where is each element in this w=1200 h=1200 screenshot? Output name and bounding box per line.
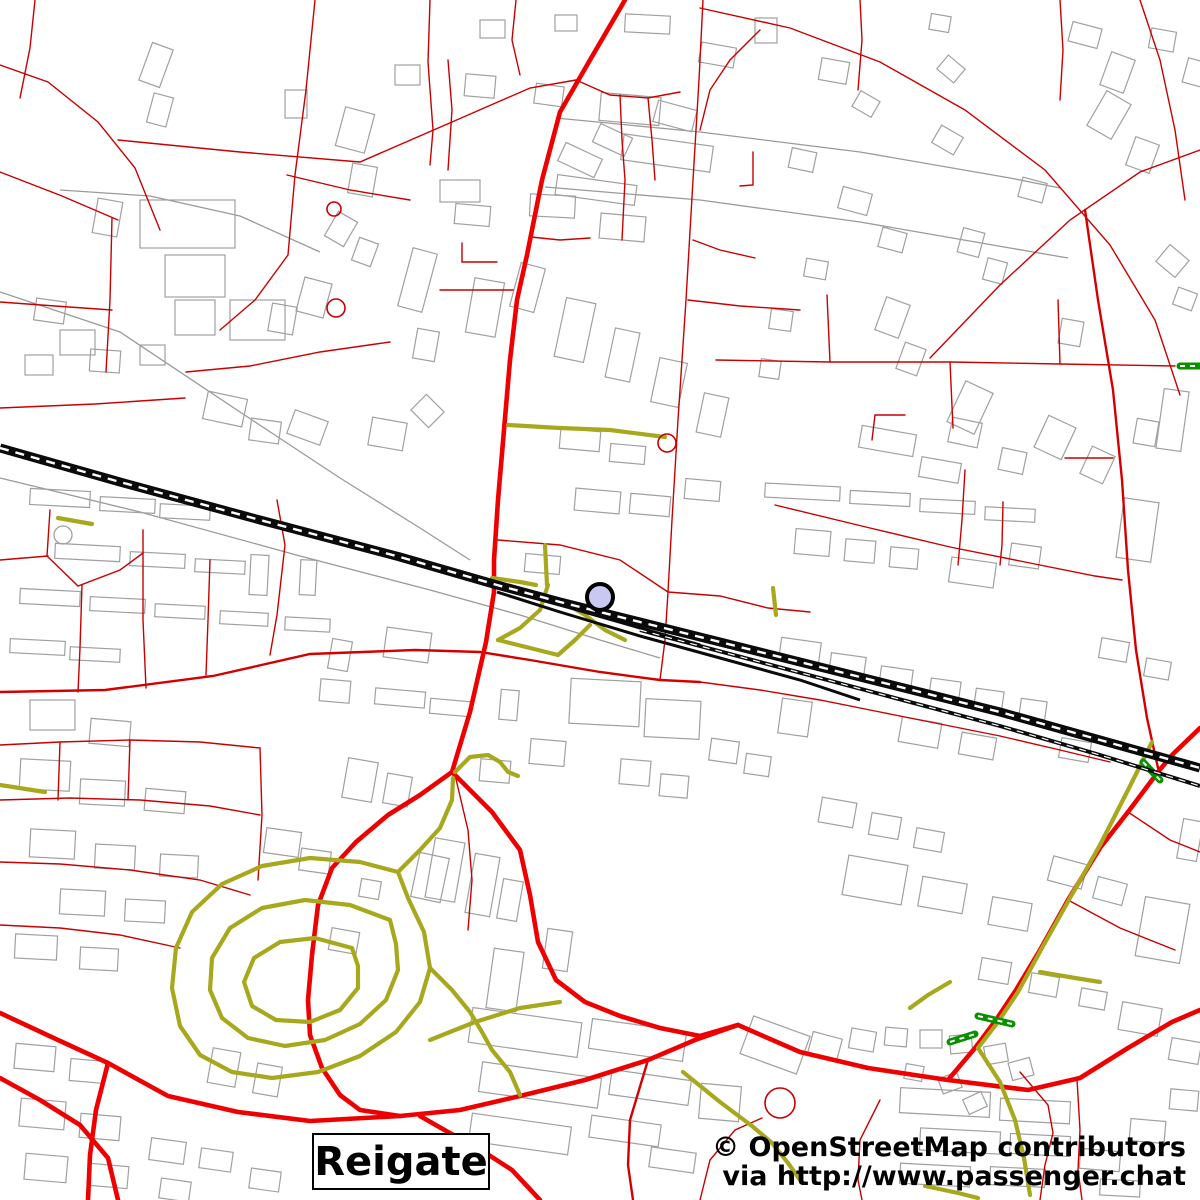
- footpath: [430, 968, 520, 1095]
- building: [195, 559, 246, 575]
- building: [998, 448, 1027, 475]
- building: [899, 1088, 990, 1118]
- major-road: [452, 772, 738, 1036]
- culdesac-circle: [327, 202, 341, 216]
- building: [29, 829, 75, 859]
- building: [896, 342, 926, 376]
- minor-road: [668, 592, 810, 612]
- building: [55, 543, 121, 561]
- building: [14, 1043, 56, 1071]
- building: [649, 1147, 696, 1173]
- building: [359, 878, 382, 899]
- boundaries-layer: [0, 118, 1068, 658]
- map-attribution: © OpenStreetMap contributors via http://…: [712, 1133, 1186, 1192]
- minor-road: [620, 95, 625, 240]
- footpath: [430, 1002, 560, 1040]
- boundary-line: [60, 190, 320, 252]
- building: [149, 1138, 187, 1165]
- building: [124, 899, 165, 923]
- building: [59, 889, 105, 916]
- building: [268, 303, 297, 335]
- building: [898, 717, 942, 749]
- building: [1169, 1089, 1199, 1111]
- minor-road: [668, 0, 703, 592]
- minor-road: [1068, 900, 1175, 950]
- minor-road: [258, 748, 262, 880]
- place-label-box: Reigate: [312, 1133, 490, 1190]
- building: [1068, 21, 1102, 48]
- building: [838, 186, 873, 215]
- building: [486, 948, 524, 1012]
- building: [1098, 638, 1129, 663]
- minor-road: [775, 505, 1122, 580]
- minor-road: [428, 0, 433, 165]
- building: [1168, 1038, 1200, 1065]
- building: [175, 300, 215, 335]
- building: [524, 554, 560, 575]
- building: [285, 617, 331, 632]
- minor-road: [716, 360, 1175, 366]
- building: [574, 488, 621, 514]
- building: [34, 298, 67, 324]
- building: [848, 1028, 876, 1052]
- building: [818, 797, 857, 828]
- map-canvas[interactable]: [0, 0, 1200, 1200]
- culdesac-circle: [765, 1088, 795, 1118]
- building: [20, 588, 81, 606]
- mid-road: [628, 1060, 648, 1200]
- building: [619, 759, 651, 787]
- minor-road: [1060, 0, 1063, 100]
- minor-road: [0, 398, 185, 408]
- railway-siding: [497, 592, 860, 700]
- minor-road: [1000, 502, 1003, 565]
- minor-road: [700, 30, 760, 130]
- building: [1093, 876, 1128, 905]
- building: [203, 391, 248, 427]
- footpath: [773, 588, 776, 615]
- minor-road: [693, 240, 755, 258]
- building: [920, 499, 976, 515]
- major-road: [738, 1010, 1200, 1090]
- building: [140, 200, 235, 248]
- building: [411, 394, 444, 427]
- minor-road: [186, 342, 390, 372]
- building: [609, 1070, 692, 1106]
- footpath: [58, 518, 92, 524]
- building: [919, 457, 962, 484]
- building: [1177, 819, 1200, 862]
- minor-road: [462, 243, 497, 262]
- building: [948, 557, 996, 588]
- building: [982, 258, 1007, 284]
- minor-road: [0, 65, 160, 230]
- building: [844, 539, 876, 564]
- building: [30, 700, 75, 730]
- minor-road: [47, 510, 143, 586]
- building: [263, 828, 301, 858]
- building: [199, 1148, 233, 1172]
- building: [592, 124, 632, 157]
- round-building: [54, 526, 72, 544]
- building: [947, 381, 993, 434]
- building: [932, 125, 964, 155]
- building: [629, 493, 671, 516]
- cycleways-layer: [950, 366, 1200, 1042]
- building: [1100, 52, 1135, 93]
- building: [90, 597, 146, 614]
- building: [19, 759, 71, 792]
- building: [621, 134, 714, 172]
- minor-road: [0, 798, 260, 815]
- minor-road: [0, 556, 48, 560]
- building: [395, 65, 420, 85]
- building: [709, 738, 740, 764]
- building: [588, 1019, 686, 1062]
- building: [684, 479, 721, 502]
- building: [1182, 58, 1200, 87]
- building: [342, 758, 378, 803]
- building: [100, 497, 156, 514]
- building: [852, 91, 880, 118]
- building: [79, 1113, 121, 1140]
- minor-road: [1058, 300, 1060, 364]
- building: [1008, 1057, 1034, 1080]
- minor-road: [106, 218, 112, 372]
- building: [1009, 543, 1042, 569]
- boundary-line: [556, 118, 1060, 188]
- building: [559, 428, 601, 451]
- footpath: [1040, 972, 1100, 982]
- building: [25, 355, 53, 375]
- building: [859, 425, 917, 456]
- cycleway: [978, 1016, 1012, 1024]
- footpath: [498, 640, 558, 655]
- building: [79, 947, 118, 971]
- building: [324, 211, 357, 246]
- building: [696, 393, 729, 437]
- building: [464, 74, 496, 99]
- building: [558, 142, 603, 177]
- footpath: [210, 900, 398, 1046]
- station-marker-layer[interactable]: [587, 584, 613, 610]
- building: [1116, 498, 1159, 562]
- building: [878, 227, 907, 253]
- building: [794, 529, 831, 557]
- building: [92, 198, 123, 237]
- footpath: [910, 982, 950, 1008]
- building: [988, 897, 1032, 932]
- building: [929, 13, 951, 32]
- building: [842, 855, 908, 905]
- building: [1173, 287, 1198, 311]
- minor-road: [448, 60, 452, 170]
- minor-road: [688, 300, 800, 310]
- building: [804, 258, 829, 280]
- building: [383, 627, 432, 663]
- minor-road: [288, 0, 315, 255]
- minor-road: [206, 560, 210, 675]
- building: [253, 1063, 283, 1097]
- building: [978, 958, 1011, 985]
- building: [740, 1016, 810, 1074]
- building: [555, 15, 577, 31]
- building: [429, 698, 470, 716]
- minor-road: [950, 362, 953, 428]
- building: [69, 1059, 106, 1084]
- culdesac-circle: [327, 299, 345, 317]
- footpath: [0, 785, 45, 792]
- building: [778, 698, 813, 737]
- building: [351, 237, 378, 266]
- footpath: [244, 938, 358, 1022]
- building: [425, 838, 465, 902]
- building: [89, 349, 120, 373]
- building: [454, 204, 491, 227]
- building: [1133, 418, 1159, 446]
- minor-road: [930, 150, 1200, 358]
- building: [440, 180, 480, 202]
- building: [14, 934, 57, 960]
- building: [1126, 137, 1160, 174]
- building: [1080, 446, 1115, 484]
- building: [699, 42, 737, 68]
- building: [139, 42, 173, 87]
- building: [159, 1178, 191, 1200]
- building: [299, 560, 317, 596]
- building: [24, 1153, 68, 1183]
- footpath: [558, 625, 590, 655]
- building: [788, 148, 817, 173]
- building: [554, 298, 596, 363]
- building: [230, 300, 285, 340]
- building: [744, 753, 772, 776]
- building: [659, 774, 689, 798]
- railway-layer: [0, 448, 1200, 786]
- minor-road: [958, 470, 965, 565]
- building: [287, 410, 328, 445]
- building: [94, 844, 135, 870]
- building: [480, 20, 505, 38]
- building: [920, 1030, 942, 1048]
- minor-road: [0, 302, 112, 310]
- building: [249, 418, 282, 444]
- building: [755, 18, 777, 43]
- building: [249, 1168, 281, 1192]
- building: [468, 1008, 582, 1058]
- footpath: [455, 755, 518, 776]
- minor-road: [1128, 812, 1200, 852]
- building: [769, 309, 794, 332]
- building: [319, 679, 351, 704]
- minor-road: [0, 925, 180, 948]
- building: [913, 828, 944, 853]
- map-viewport[interactable]: Reigate © OpenStreetMap contributors via…: [0, 0, 1200, 1200]
- building: [10, 639, 66, 656]
- building: [1135, 897, 1190, 964]
- attribution-line1: © OpenStreetMap contributors: [712, 1133, 1186, 1163]
- building: [759, 359, 781, 380]
- building: [850, 490, 911, 506]
- building: [884, 1027, 907, 1047]
- building: [335, 107, 374, 153]
- building: [374, 688, 425, 708]
- building: [155, 604, 206, 620]
- building: [413, 328, 440, 361]
- building: [79, 779, 125, 806]
- building: [146, 93, 173, 127]
- minor-road: [20, 0, 35, 98]
- building: [625, 14, 671, 34]
- building: [130, 552, 186, 569]
- minor-road: [118, 80, 576, 162]
- building: [918, 876, 968, 913]
- footpath: [508, 425, 665, 437]
- building: [328, 638, 353, 671]
- place-label-text: Reigate: [314, 1139, 488, 1185]
- major-road: [0, 1013, 738, 1121]
- building: [818, 58, 849, 85]
- building: [1018, 177, 1047, 203]
- building: [368, 417, 407, 451]
- minor-road: [0, 172, 118, 220]
- building: [937, 55, 965, 83]
- building: [465, 278, 504, 337]
- footpath: [545, 545, 547, 585]
- building: [70, 647, 121, 663]
- minor-road: [700, 8, 1180, 395]
- building: [497, 879, 524, 922]
- building: [411, 852, 450, 902]
- building: [1087, 91, 1131, 140]
- building: [569, 678, 641, 727]
- minor-road: [858, 0, 862, 90]
- minor-road: [512, 0, 520, 75]
- building: [249, 555, 269, 596]
- mid-road: [1085, 210, 1158, 768]
- building: [1144, 658, 1172, 680]
- building: [165, 255, 225, 297]
- building: [875, 297, 910, 338]
- building: [1058, 318, 1084, 346]
- minor-road: [827, 295, 830, 362]
- building: [958, 732, 996, 760]
- building: [499, 689, 520, 720]
- building: [1156, 245, 1189, 278]
- building: [296, 277, 332, 318]
- minor-road: [128, 740, 130, 800]
- station-marker[interactable]: [587, 584, 613, 610]
- building: [644, 699, 701, 740]
- building: [985, 507, 1036, 523]
- building: [398, 248, 438, 312]
- attribution-line2: via http://www.passenger.chat: [712, 1162, 1186, 1192]
- building: [963, 1092, 988, 1115]
- building: [589, 1115, 661, 1147]
- building: [605, 328, 640, 382]
- minor-road: [531, 237, 590, 240]
- building: [889, 547, 919, 569]
- building: [529, 739, 566, 767]
- minor-road: [648, 98, 655, 180]
- building: [89, 718, 131, 746]
- building: [60, 330, 95, 355]
- building: [1034, 415, 1076, 459]
- building: [1156, 389, 1189, 452]
- building: [1047, 856, 1087, 889]
- building: [868, 813, 901, 840]
- building: [1079, 988, 1108, 1010]
- building: [220, 611, 269, 626]
- building: [765, 483, 841, 501]
- building: [609, 444, 645, 465]
- minor-road: [740, 152, 753, 186]
